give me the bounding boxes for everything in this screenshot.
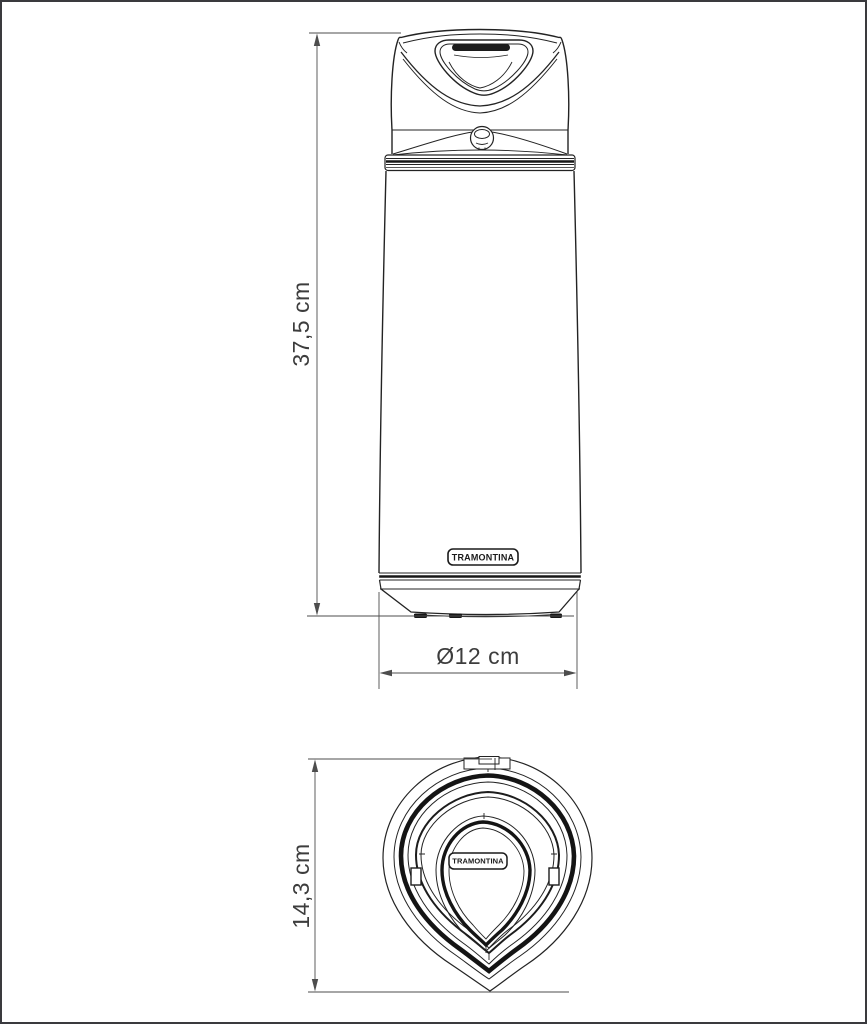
body-right-line: [574, 171, 581, 573]
body-left-line: [379, 171, 386, 573]
brand-badge-text: TRAMONTINA: [452, 553, 515, 563]
arrow-right-icon: [564, 670, 577, 676]
height-dimension-label: 37,5 cm: [288, 281, 314, 366]
rim-bands: [385, 155, 575, 171]
depth-dimension: 14,3 cm: [288, 759, 569, 992]
arrow-up-icon: [312, 760, 318, 773]
arrow-up-icon: [314, 34, 320, 47]
top-notch: [464, 757, 510, 771]
lid-latch-button: [471, 127, 494, 151]
arrow-down-icon: [314, 603, 320, 616]
lid-band-shallow-curve: [393, 150, 567, 155]
technical-drawing: TRAMONTINA 37,5 cm: [2, 2, 867, 1024]
lid-handle-recess-inner: [403, 59, 557, 113]
center-knob-face: [436, 816, 535, 951]
lid-ear-left-detail: [399, 42, 407, 53]
depth-dimension-label: 14,3 cm: [288, 843, 314, 928]
lid-knob-inner-outline: [440, 44, 528, 91]
lid-handle-recess-outer: [401, 52, 559, 106]
brand-badge-top-text: TRAMONTINA: [452, 857, 504, 866]
side-tab-right: [549, 868, 559, 885]
lid-ear-right-detail: [553, 42, 561, 53]
brand-badge: TRAMONTINA: [448, 549, 518, 565]
side-tab-left: [411, 868, 421, 885]
height-dimension: 37,5 cm: [288, 33, 574, 616]
diameter-dimension: Ø12 cm: [379, 592, 577, 689]
arrow-left-icon: [380, 670, 393, 676]
body-lower-bands: [379, 573, 581, 589]
base-outline: [381, 589, 579, 617]
page: TRAMONTINA 37,5 cm: [0, 0, 867, 1024]
front-view: TRAMONTINA: [379, 30, 581, 619]
knob-brand-slot: [452, 44, 510, 51]
arrow-down-icon: [312, 979, 318, 992]
knob-slot-under-arc: [454, 55, 508, 58]
top-view: TRAMONTINA: [383, 757, 592, 992]
diameter-dimension-label: Ø12 cm: [436, 643, 520, 669]
lid-top-inner-line: [403, 34, 557, 43]
brand-badge-top: TRAMONTINA: [449, 853, 507, 869]
